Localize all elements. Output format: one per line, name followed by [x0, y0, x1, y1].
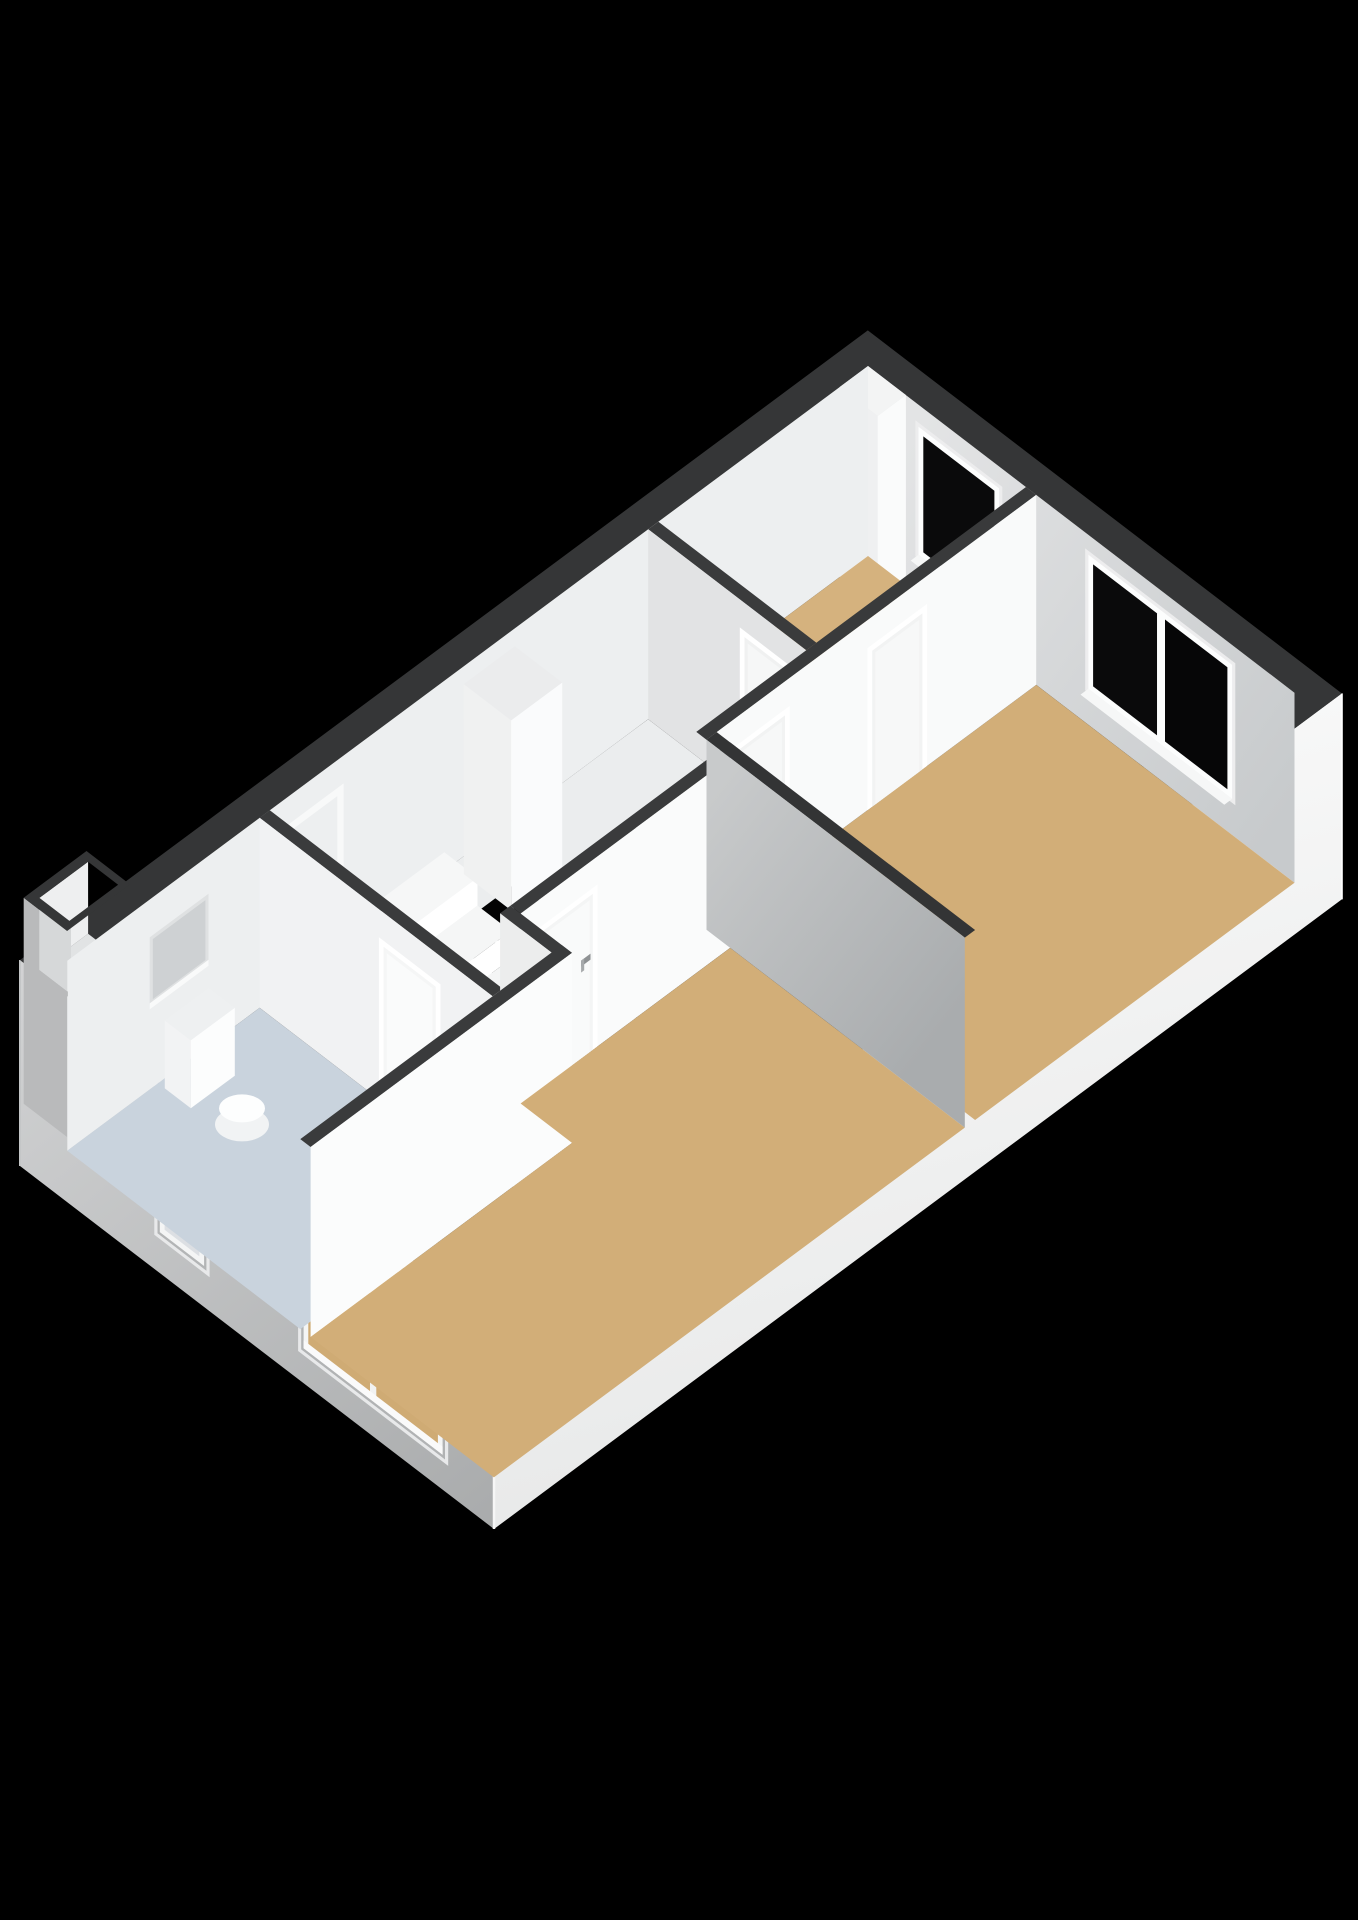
right-window-mullion — [1157, 613, 1165, 741]
stair-column-face — [464, 684, 511, 910]
door-handle-nub — [581, 958, 584, 972]
floor-plan-3d-view — [0, 0, 1358, 1920]
toilet-seat — [219, 1094, 265, 1122]
floor-plan-render-stage — [0, 0, 1358, 1920]
